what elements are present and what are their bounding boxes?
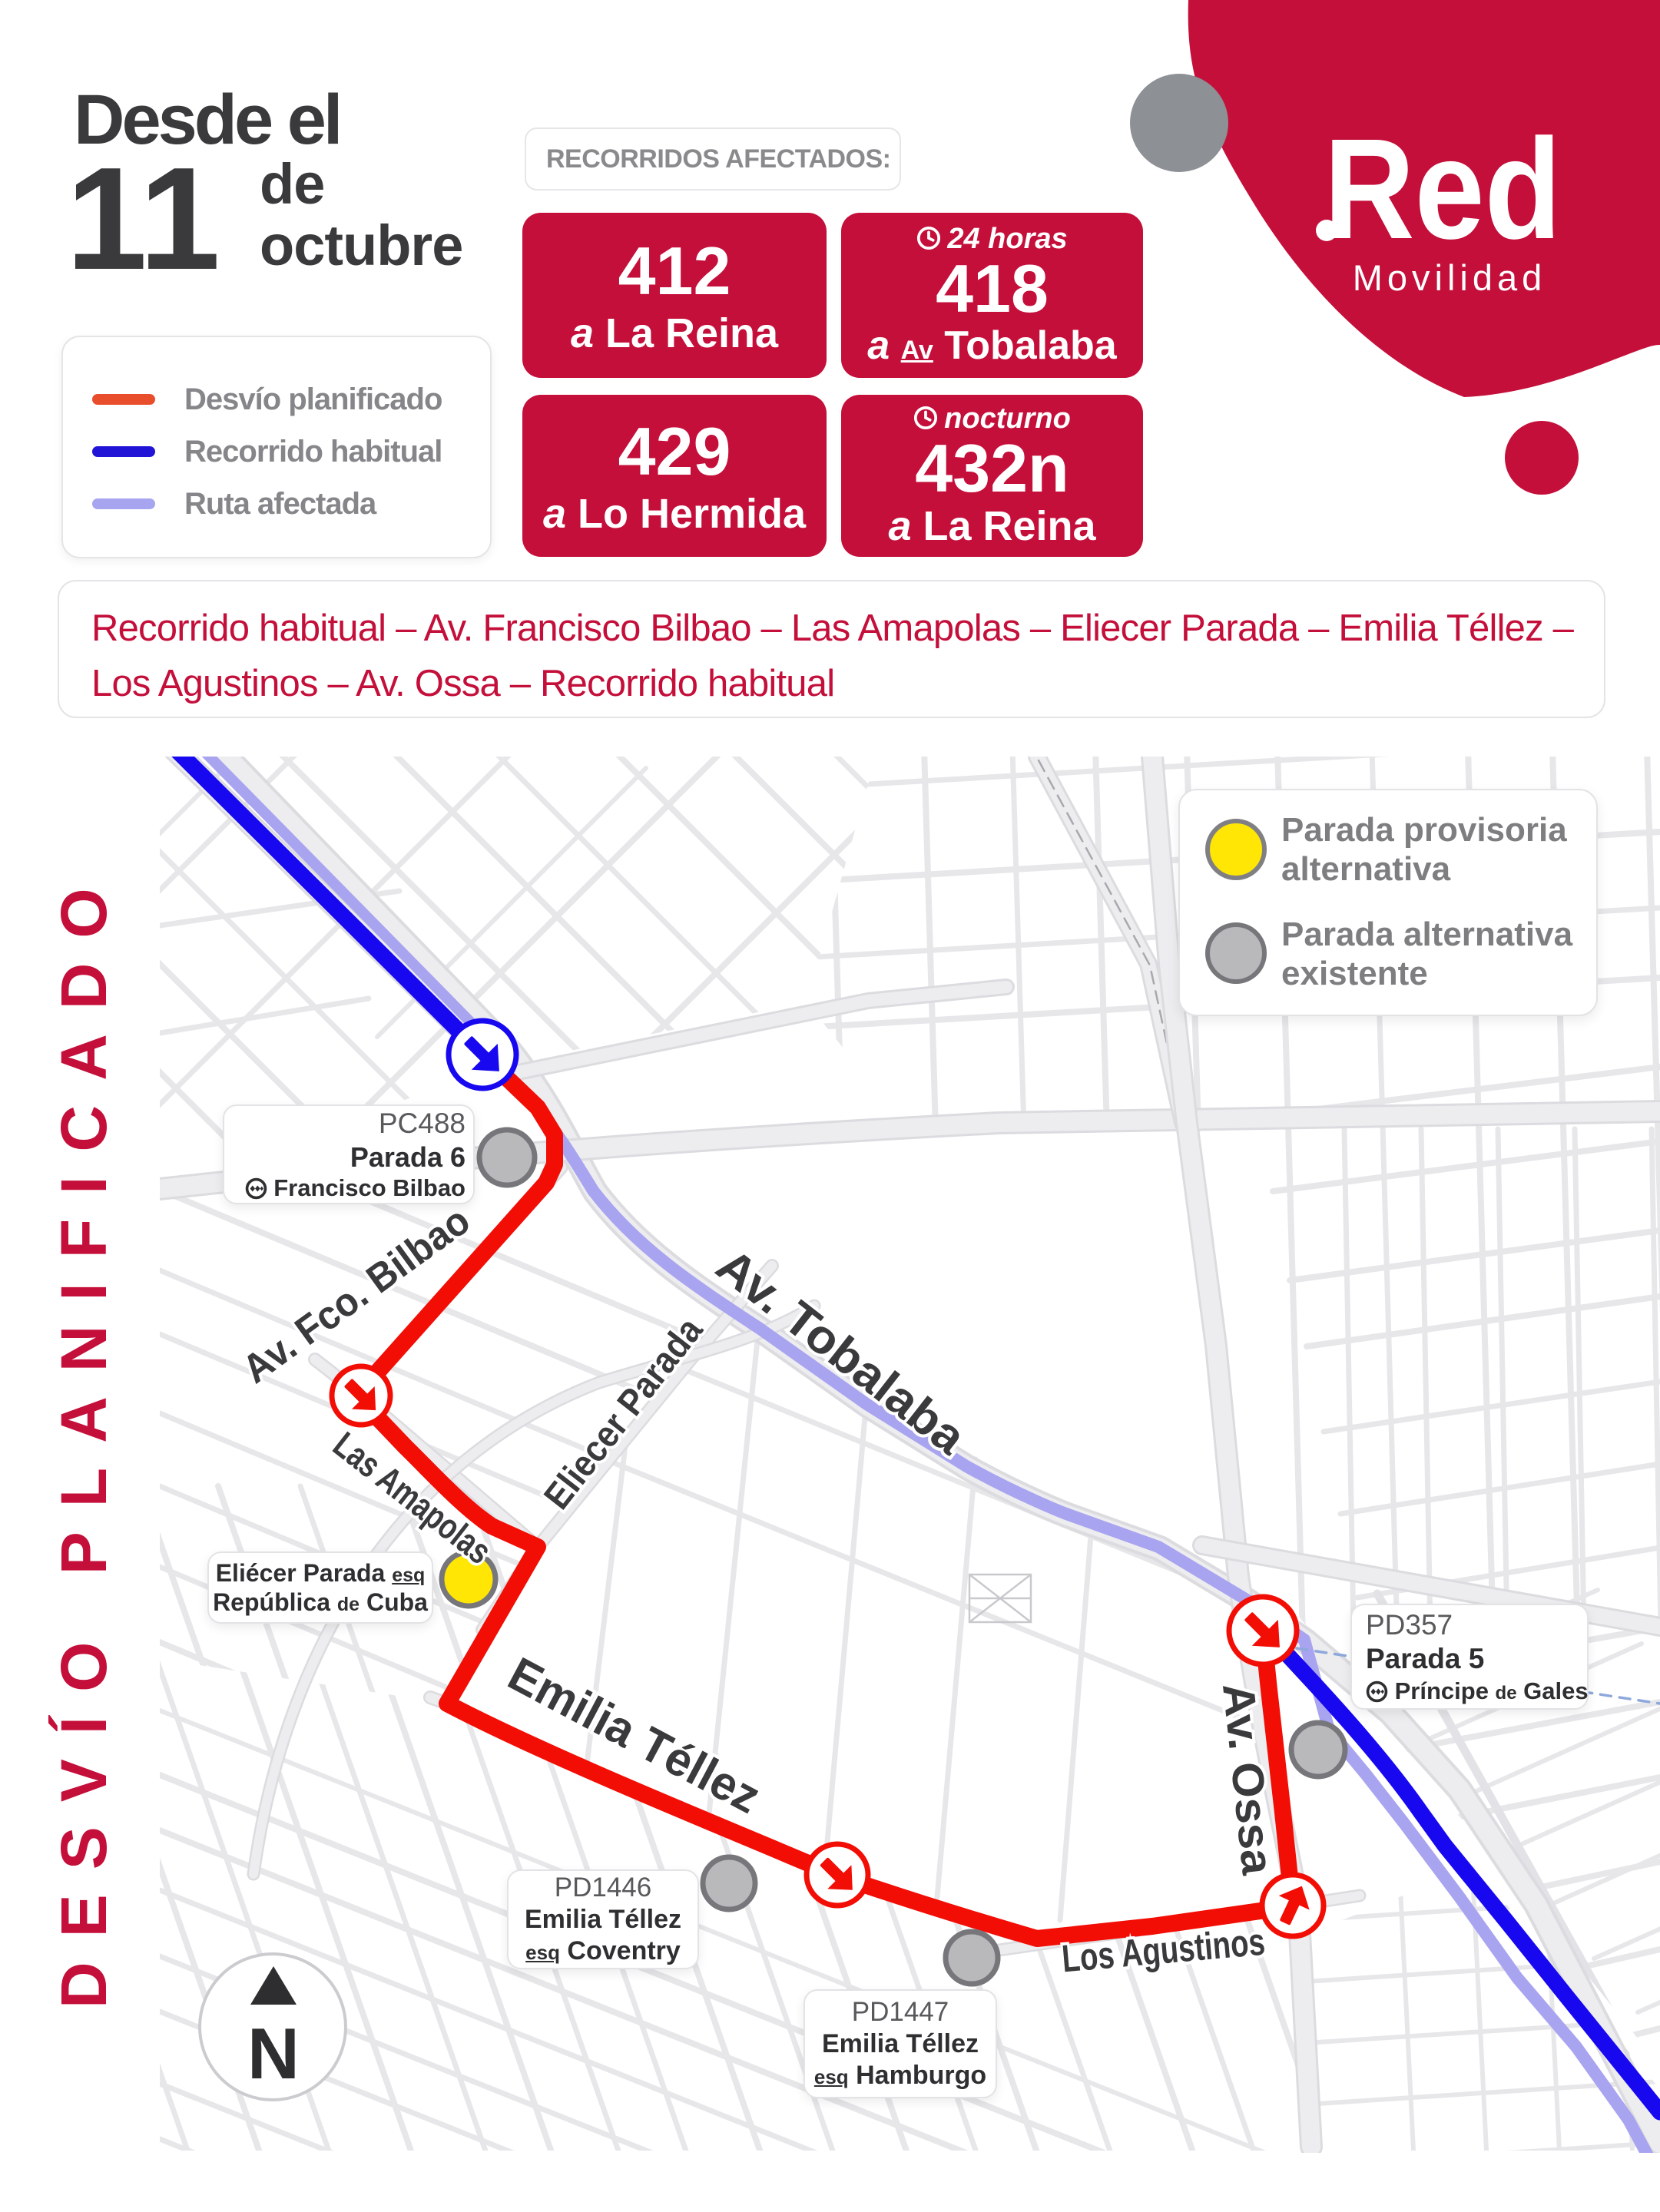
svg-text:Eliecer Parada: Eliecer Parada [537, 1310, 711, 1517]
svg-text:Red: Red [1324, 109, 1561, 269]
svg-text:Movilidad: Movilidad [1353, 257, 1547, 298]
svg-text:N: N [247, 2013, 300, 2094]
